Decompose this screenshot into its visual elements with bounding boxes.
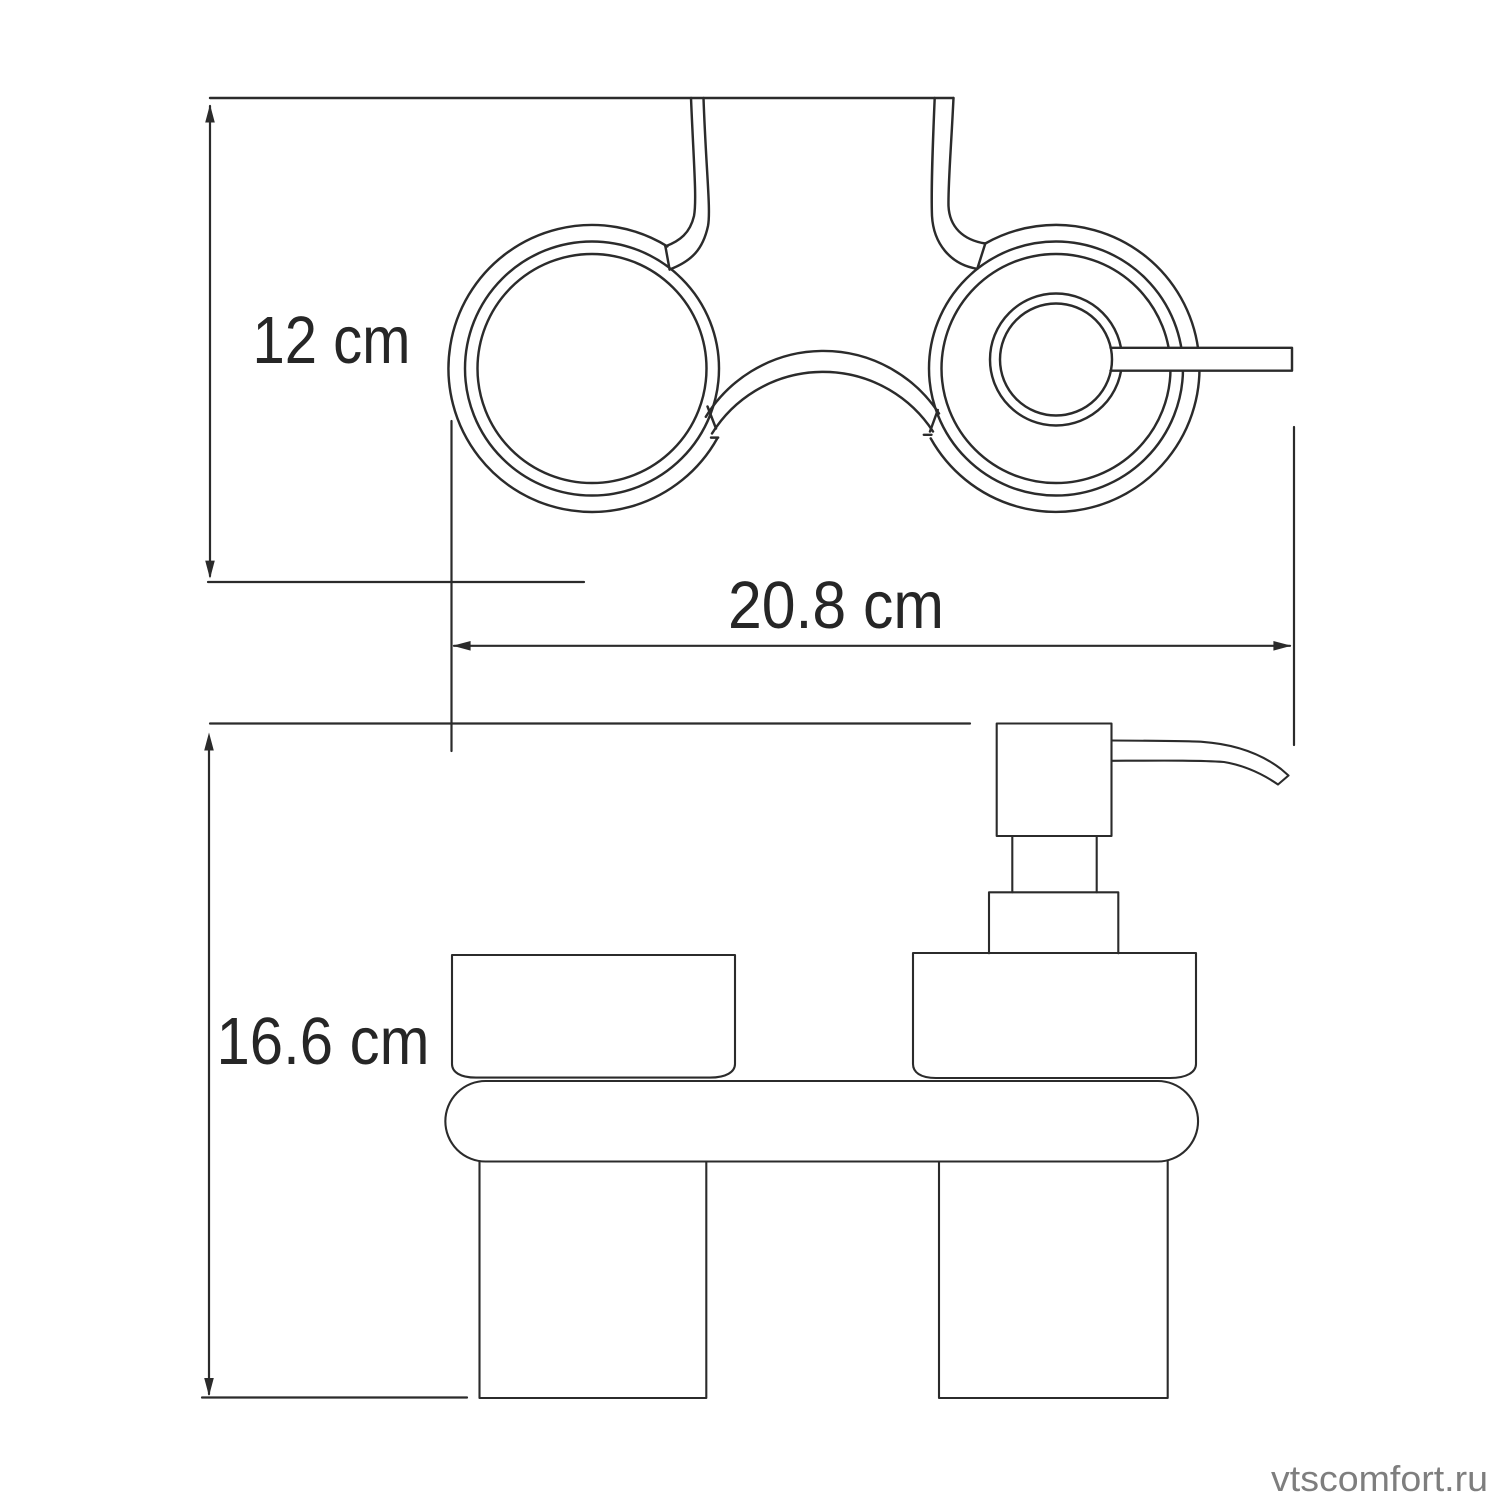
svg-text:20.8 cm: 20.8 cm [728,568,944,643]
svg-text:12 cm: 12 cm [253,303,411,378]
svg-text:vtscomfort.ru: vtscomfort.ru [1271,1458,1488,1499]
svg-text:16.6 cm: 16.6 cm [217,1004,430,1079]
